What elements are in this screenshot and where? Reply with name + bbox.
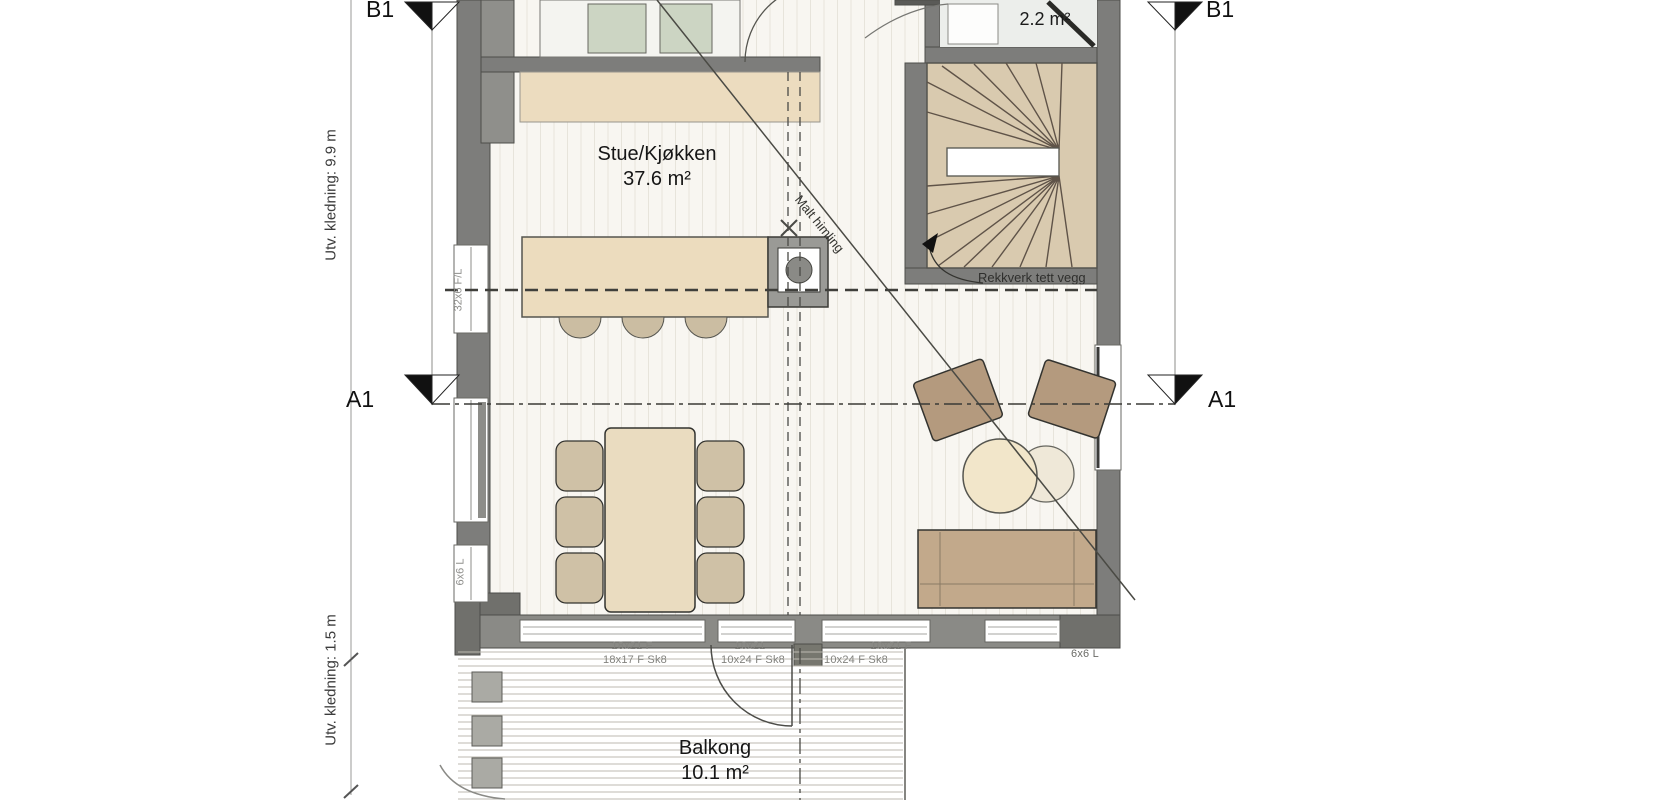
balcony-name: Balkong [679, 737, 751, 760]
floor-plan-drawing [0, 0, 1670, 800]
balcony-area: 10.1 m² [681, 762, 749, 785]
kitchen-counter [520, 72, 820, 122]
section-marker-b1-left [405, 2, 459, 30]
section-label-a1-right: A1 [1208, 386, 1236, 412]
staircase [927, 63, 1097, 268]
section-marker-a1-right [1148, 375, 1202, 404]
balcony-deck [440, 648, 905, 800]
kitchen-appliance-block [540, 0, 740, 57]
window-spec-bottom-2b: 10x24 F Sk8 [721, 654, 785, 667]
living-room-name: Stue/Kjøkken [598, 143, 717, 166]
window-spec-bottom-right: 6x6 L [1071, 648, 1099, 661]
dining-table-set [556, 428, 744, 612]
window-spec-bottom-3a: 10x21 F [870, 640, 911, 653]
stair-note: Rekkverk tett vegg [978, 271, 1086, 286]
window-spec-bottom-2a: 10x21 [735, 640, 766, 653]
window-spec-bottom-3b: 10x24 F Sk8 [824, 654, 888, 667]
living-room-area: 37.6 m² [623, 168, 691, 191]
window-spec-bottom-1b: 18x17 F Sk8 [603, 654, 667, 667]
section-label-b1-left: B1 [366, 0, 394, 22]
dimension-cladding-lower: Utv. kledning: 1.5 m [322, 614, 339, 745]
window-spec-left-lower: 6x6 L [455, 559, 468, 586]
section-marker-b1-right [1148, 2, 1202, 30]
stair-landing [947, 148, 1059, 176]
section-label-b1-right: B1 [1206, 0, 1234, 22]
floor-plan-canvas: B1 B1 A1 A1 Stue/Kjøkken 37.6 m² 2.2 m² … [0, 0, 1670, 800]
dimension-cladding-upper: Utv. kledning: 9.9 m [322, 129, 339, 260]
section-marker-a1-left [405, 375, 459, 404]
sofa [918, 530, 1096, 608]
wc-area: 2.2 m² [1019, 9, 1070, 30]
section-label-a1-left: A1 [346, 386, 374, 412]
window-spec-left-upper: 32x6 F/L [453, 269, 466, 312]
balcony-railing-posts [472, 672, 502, 788]
window-spec-bottom-1a: 18x21 F [611, 640, 652, 653]
